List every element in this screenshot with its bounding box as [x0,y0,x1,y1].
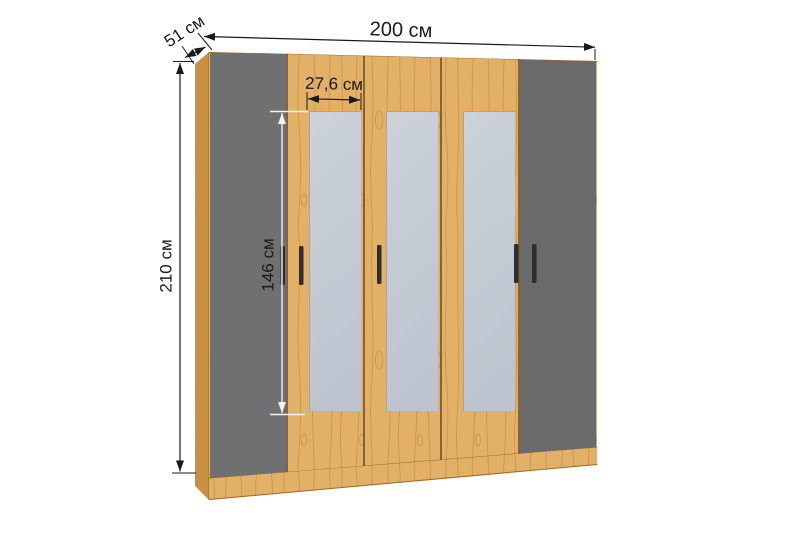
wardrobe [195,52,597,500]
door-mirror-2 [365,56,440,465]
door-gray-right [520,60,596,454]
dimension-width-label: 200 см [369,18,432,42]
door-handle-mirror-1 [299,246,304,285]
door-mirror-3 [442,58,518,460]
door-handle-gray-right [532,244,537,283]
mirror-panel-2 [386,111,438,411]
door-handle-gray-left [281,246,286,285]
door-handle-mirror-2 [377,245,382,284]
mirror-panel-1 [309,111,361,411]
cabinet-side-panel [195,52,209,500]
door-handle-mirror-3 [514,244,519,283]
mirror-width-label: 27,6 см [305,74,363,95]
diagram-canvas: 200 см 51 см 210 см 27,6 см [0,0,800,533]
wardrobe-dimension-diagram: 200 см 51 см 210 см 27,6 см [0,0,800,533]
mirror-panel-3 [463,111,515,411]
dimension-height-label: 210 см [156,239,175,292]
mirror-height-label: 146 см [258,238,277,291]
